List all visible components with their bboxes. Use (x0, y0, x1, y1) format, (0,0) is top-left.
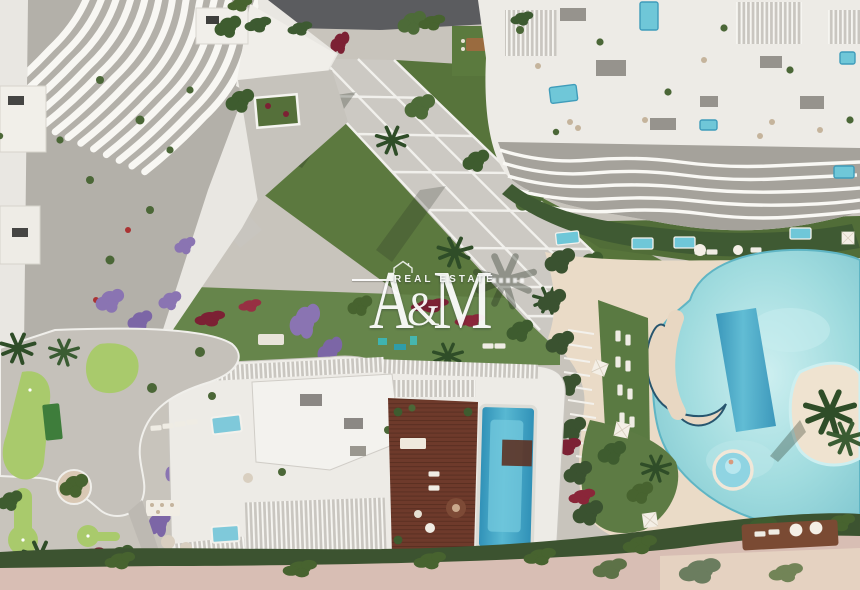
lagoon-pool-area (538, 232, 860, 556)
site-aerial-render (0, 0, 860, 590)
plunge-pool (211, 414, 242, 434)
aerial-render-view: A & M REAL ESTATE (0, 0, 860, 590)
plunge-pool (211, 525, 239, 543)
rooftop-infinity-pool (477, 405, 536, 549)
rooftop-wood-deck (388, 398, 478, 556)
